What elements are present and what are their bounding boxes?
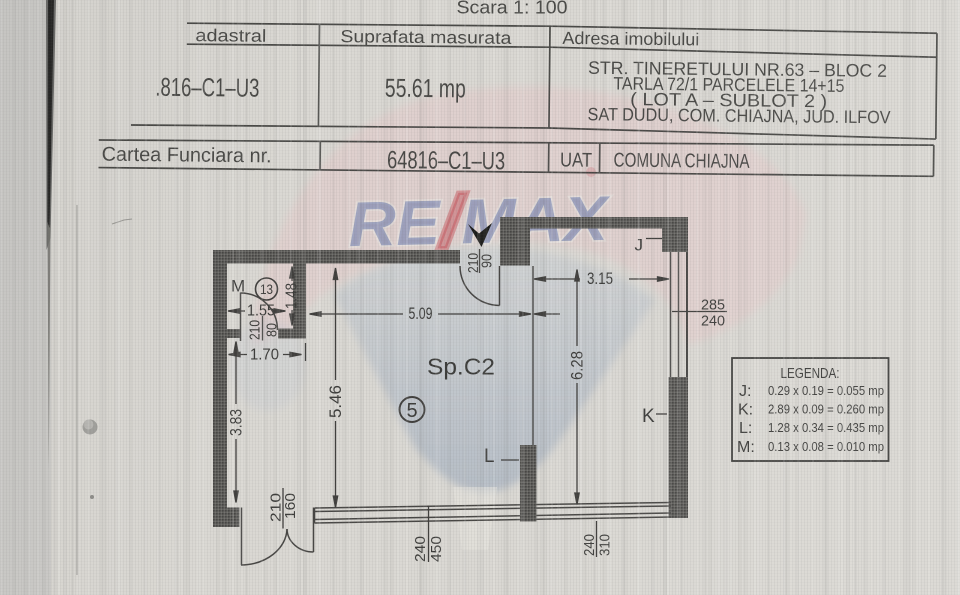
svg-text:M: M: [231, 277, 245, 296]
svg-text:Suprafata masurata: Suprafata masurata: [340, 26, 511, 48]
svg-text:SAT DUDU, COM. CHIAJNA, JU: SAT DUDU, COM. CHIAJNA, JUD. ILFOV: [587, 104, 890, 127]
svg-text:L: L: [484, 446, 495, 467]
svg-text:1.70: 1.70: [250, 347, 279, 364]
svg-text:Sp.C2: Sp.C2: [427, 354, 495, 380]
svg-text:Cartea Funciara nr.: Cartea Funciara nr.: [102, 144, 272, 168]
svg-text:Scara 1: 100: Scara 1: 100: [457, 0, 568, 17]
svg-text:0.13 x 0.08 = 0.010 mp: 0.13 x 0.08 = 0.010 mp: [768, 439, 884, 454]
svg-text:Adresa imobilului: Adresa imobilului: [562, 28, 699, 49]
svg-text:310: 310: [598, 534, 614, 556]
svg-text:0.29 x 0.19 = 0.055 mp: 0.29 x 0.19 = 0.055 mp: [768, 383, 884, 398]
svg-text:1.55: 1.55: [247, 303, 275, 320]
svg-text:L:: L:: [739, 420, 752, 437]
svg-text:1.48: 1.48: [284, 283, 301, 309]
svg-text:K:: K:: [738, 402, 753, 419]
svg-text:M:: M:: [737, 439, 755, 456]
svg-text:5: 5: [406, 400, 417, 422]
svg-text:5.09: 5.09: [409, 305, 433, 323]
svg-text:LEGENDA:: LEGENDA:: [781, 365, 840, 382]
svg-text:240: 240: [701, 314, 725, 330]
svg-text:UAT: UAT: [560, 149, 592, 171]
svg-text:5.46: 5.46: [327, 385, 345, 418]
svg-text:.816–C1–U3: .816–C1–U3: [155, 72, 259, 103]
svg-text:240: 240: [413, 536, 429, 562]
svg-text:90: 90: [480, 254, 496, 268]
svg-text:COMUNA CHIAJNA: COMUNA CHIAJNA: [613, 149, 750, 172]
svg-text:2.89 x 0.09 = 0.260 mp: 2.89 x 0.09 = 0.260 mp: [768, 402, 884, 417]
svg-text:3.15: 3.15: [587, 270, 613, 288]
svg-text:160: 160: [283, 493, 299, 519]
svg-text:64816–C1–U3: 64816–C1–U3: [387, 146, 505, 175]
svg-text:J:: J:: [739, 383, 751, 400]
svg-text:13: 13: [260, 282, 273, 297]
svg-text:55.61 mp: 55.61 mp: [385, 73, 466, 104]
svg-text:285: 285: [701, 298, 725, 314]
svg-text:J: J: [635, 236, 644, 255]
svg-text:K: K: [642, 406, 655, 427]
svg-text:1.28 x 0.34 = 0.435 mp: 1.28 x 0.34 = 0.435 mp: [768, 420, 884, 435]
svg-text:240: 240: [582, 534, 598, 556]
svg-text:adastral: adastral: [195, 25, 266, 46]
svg-text:210: 210: [248, 320, 264, 340]
svg-text:6.28: 6.28: [569, 351, 587, 380]
svg-text:450: 450: [429, 536, 445, 562]
svg-text:80: 80: [265, 323, 281, 337]
svg-text:3.83: 3.83: [228, 409, 246, 436]
